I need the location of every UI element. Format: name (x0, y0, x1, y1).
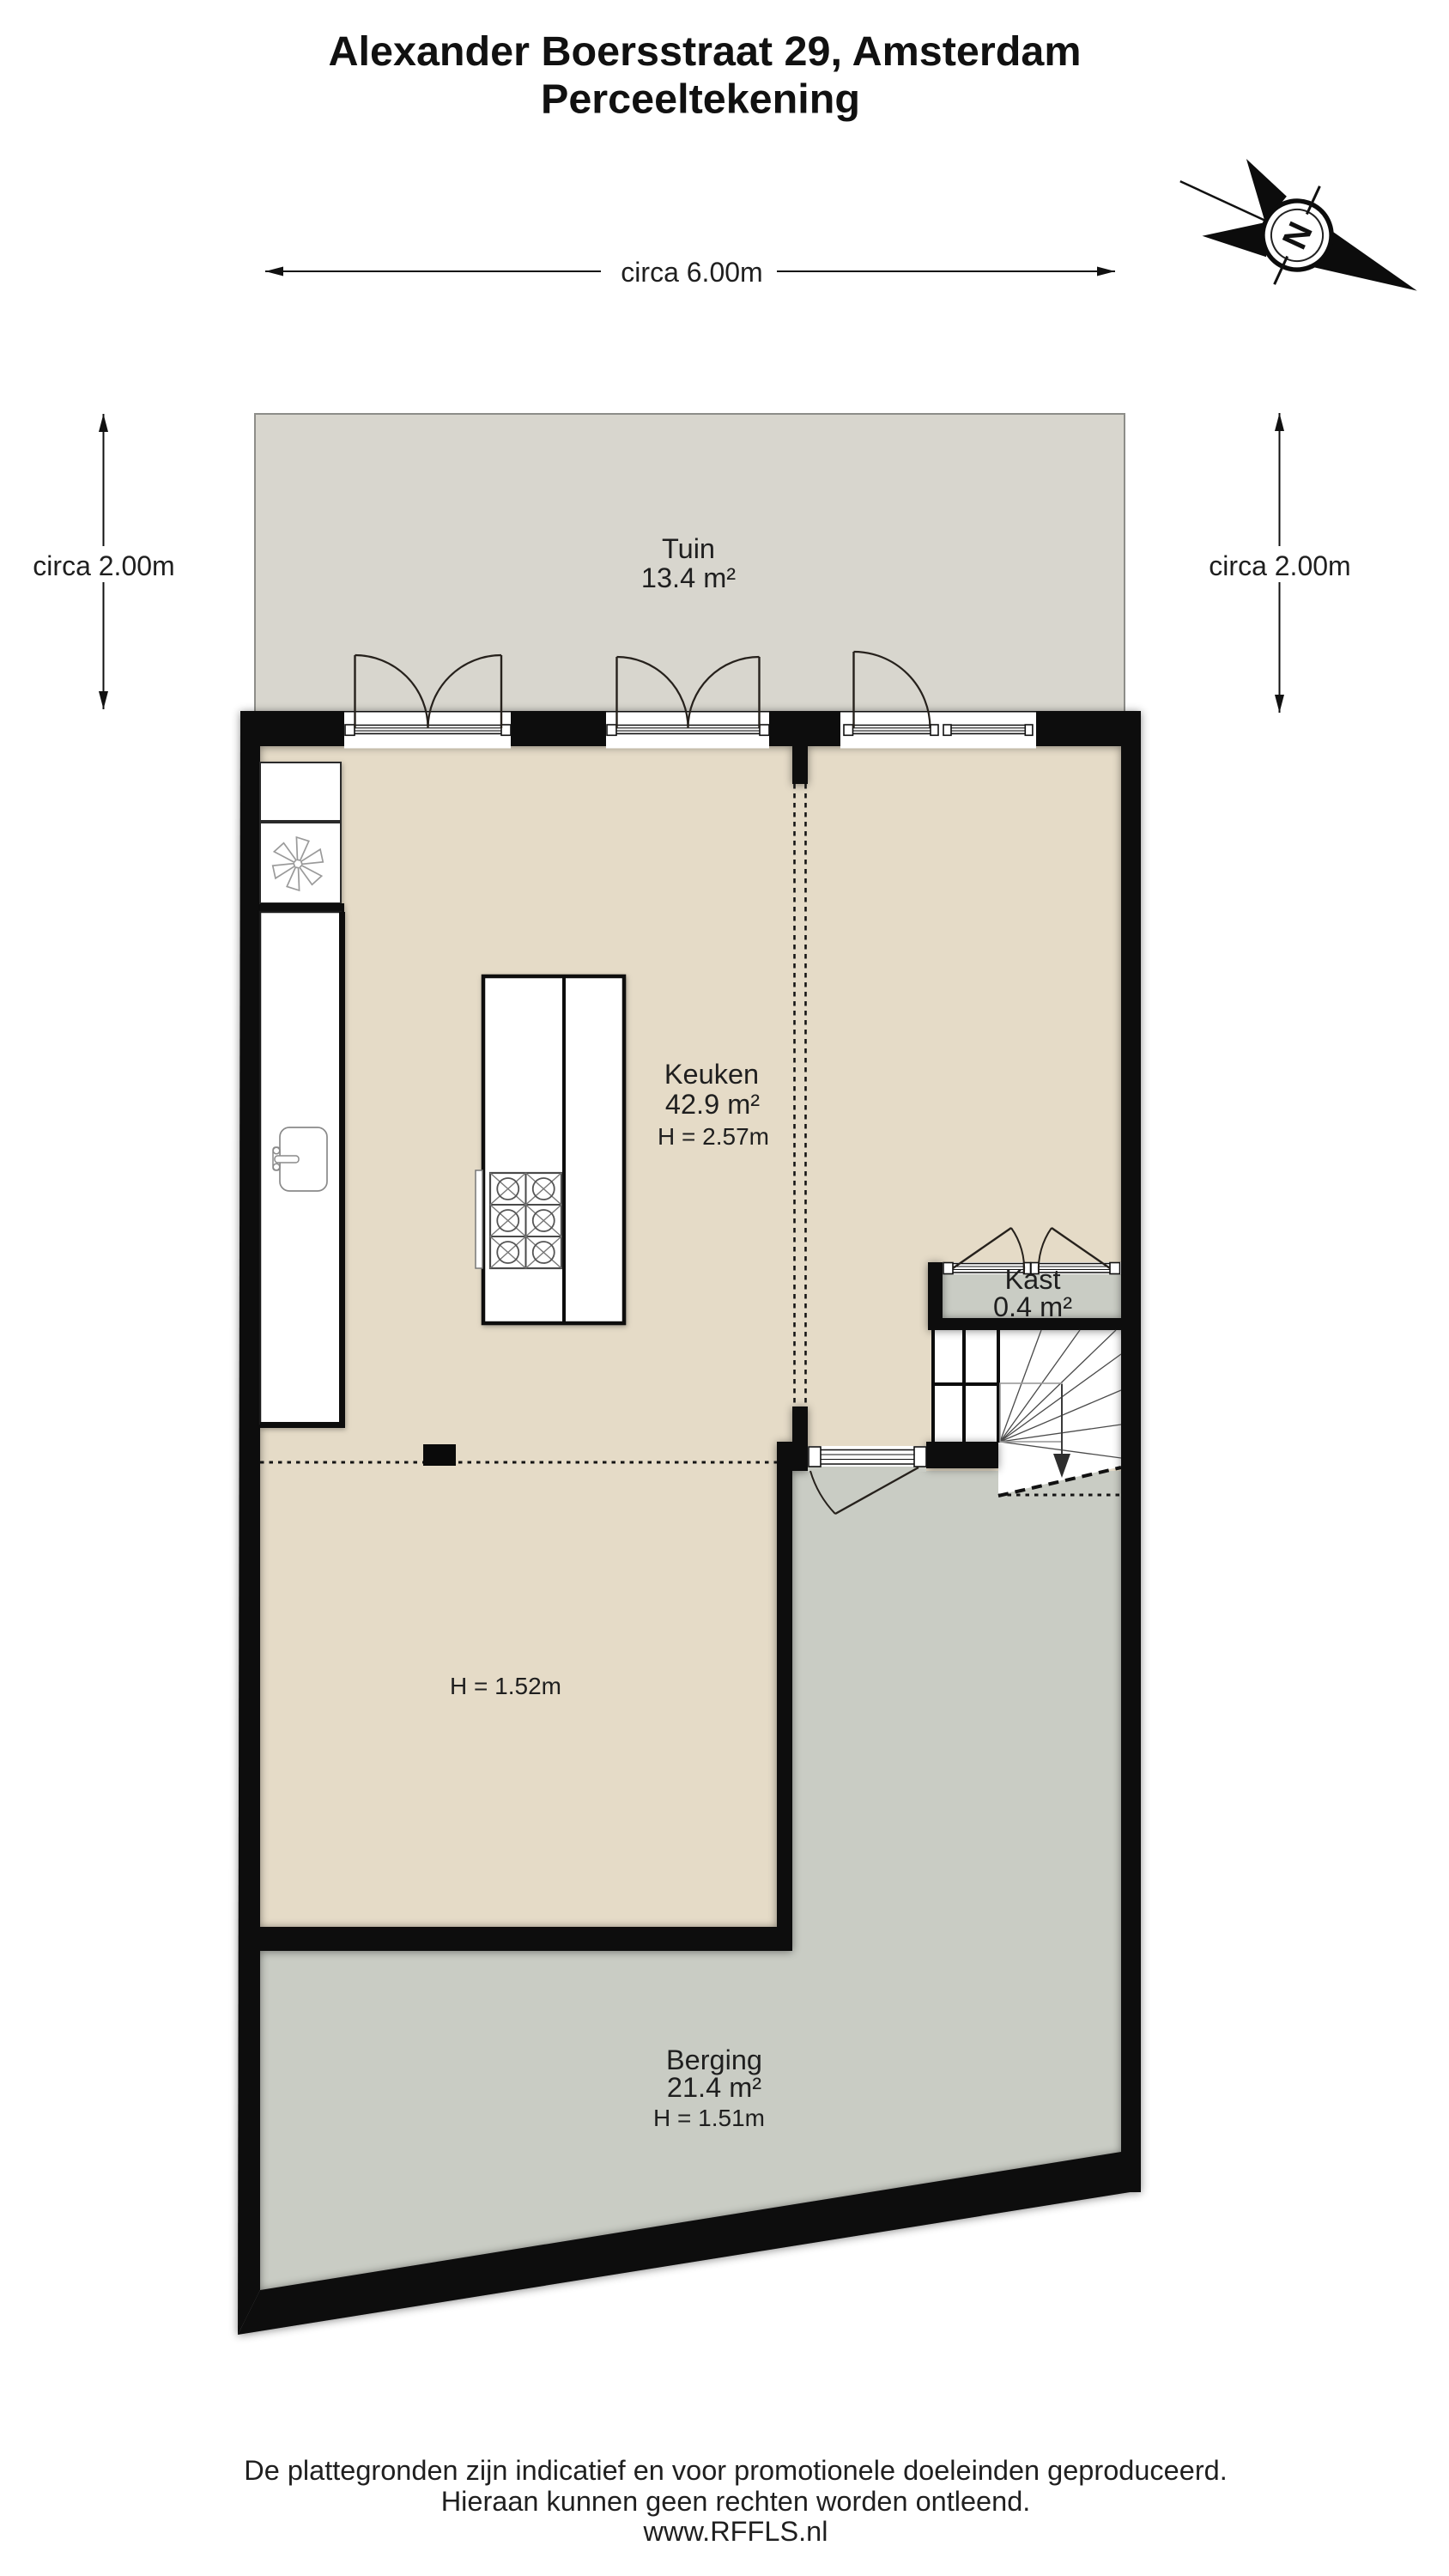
svg-text:Alexander Boersstraat 29, Amst: Alexander Boersstraat 29, Amsterdam (329, 28, 1082, 75)
svg-text:circa 2.00m: circa 2.00m (1209, 550, 1350, 581)
svg-text:Hieraan kunnen geen rechten wo: Hieraan kunnen geen rechten worden ontle… (441, 2486, 1031, 2517)
svg-text:circa 6.00m: circa 6.00m (621, 257, 762, 288)
svg-text:Tuin: Tuin (662, 533, 715, 564)
svg-text:13.4 m²: 13.4 m² (641, 562, 736, 593)
svg-text:www.RFFLS.nl: www.RFFLS.nl (643, 2516, 828, 2547)
svg-text:Berging: Berging (666, 2044, 762, 2075)
svg-text:21.4 m²: 21.4 m² (667, 2072, 761, 2103)
svg-text:H = 1.52m: H = 1.52m (450, 1673, 561, 1699)
svg-text:circa 2.00m: circa 2.00m (33, 550, 174, 581)
svg-text:Kast: Kast (1004, 1264, 1060, 1295)
svg-text:De plattegronden zijn indicati: De plattegronden zijn indicatief en voor… (244, 2455, 1228, 2486)
svg-text:42.9 m²: 42.9 m² (665, 1089, 760, 1120)
svg-text:Keuken: Keuken (664, 1059, 759, 1090)
svg-text:H = 1.51m: H = 1.51m (653, 2105, 765, 2131)
svg-text:0.4 m²: 0.4 m² (993, 1291, 1072, 1322)
svg-text:Perceeltekening: Perceeltekening (541, 76, 860, 123)
svg-text:H = 2.57m: H = 2.57m (658, 1123, 769, 1150)
